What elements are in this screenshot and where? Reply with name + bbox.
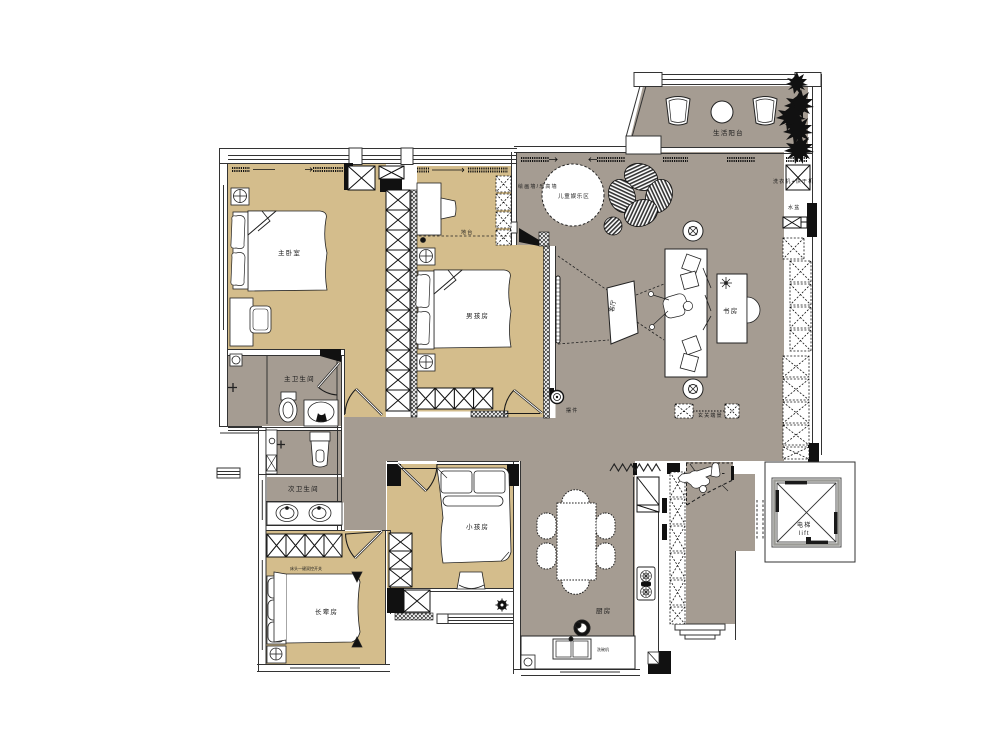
svg-text:床头一键双控开关: 床头一键双控开关 <box>290 565 322 571</box>
svg-text:书房: 书房 <box>723 306 738 315</box>
svg-text:主卫生间: 主卫生间 <box>284 374 315 383</box>
svg-text:儿童娱乐区: 儿童娱乐区 <box>558 192 590 200</box>
svg-text:洗衣机+烘干机: 洗衣机+烘干机 <box>773 178 814 185</box>
svg-text:生活阳台: 生活阳台 <box>713 128 744 137</box>
svg-text:洗碗机: 洗碗机 <box>597 646 609 652</box>
svg-text:厨房: 厨房 <box>596 606 611 615</box>
svg-text:lift: lift <box>799 531 810 537</box>
svg-text:主卧室: 主卧室 <box>278 248 301 257</box>
svg-text:水盆: 水盆 <box>788 204 800 211</box>
svg-text:电梯: 电梯 <box>797 521 811 529</box>
svg-text:地台: 地台 <box>461 229 473 236</box>
svg-text:次卫生间: 次卫生间 <box>288 484 319 493</box>
svg-text:摆件: 摆件 <box>566 407 578 414</box>
svg-text:玄关端景: 玄关端景 <box>698 412 723 419</box>
svg-text:长辈房: 长辈房 <box>315 607 338 616</box>
svg-text:绘画墙/乐高墙: 绘画墙/乐高墙 <box>518 183 558 190</box>
svg-text:男孩房: 男孩房 <box>466 311 489 320</box>
svg-text:小孩房: 小孩房 <box>466 522 489 531</box>
